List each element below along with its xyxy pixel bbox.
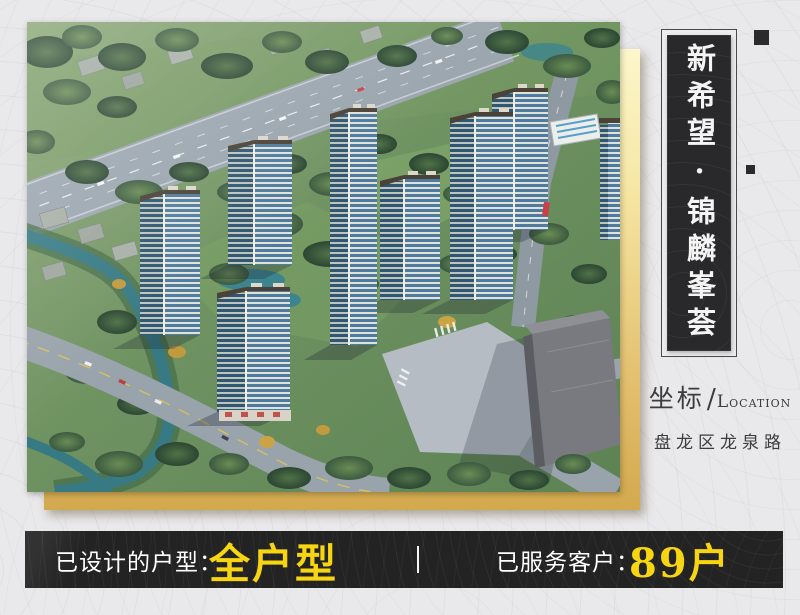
location-heading: 坐标 / L OCATION bbox=[638, 379, 800, 415]
served-clients-value: 89户 bbox=[629, 531, 731, 589]
designed-types-value: 全户型 bbox=[209, 530, 338, 590]
location-address: 盘龙区龙泉路 bbox=[638, 428, 800, 453]
aerial-rendering-image bbox=[27, 22, 620, 492]
project-title-card: 新希望·锦麟峯荟 bbox=[661, 29, 737, 357]
location-label-en-rest: OCATION bbox=[729, 397, 791, 410]
location-label-en-initial: L bbox=[717, 392, 729, 412]
location-slash: / bbox=[707, 384, 716, 415]
sunlight-glare bbox=[27, 22, 620, 492]
stats-bar: 已设计的户型： 全户型 已服务客户： 89户 bbox=[25, 531, 783, 588]
stats-divider bbox=[417, 546, 419, 573]
project-title: 新希望·锦麟峯荟 bbox=[685, 43, 714, 344]
square-accent-large bbox=[754, 30, 769, 45]
square-accent-small bbox=[746, 165, 755, 174]
project-title-inner-panel: 新希望·锦麟峯荟 bbox=[667, 35, 731, 351]
aerial-rendering-svg bbox=[27, 22, 620, 492]
served-clients-label: 已服务客户： bbox=[496, 543, 640, 577]
location-block: 坐标 / L OCATION 盘龙区龙泉路 bbox=[638, 379, 800, 453]
designed-types-label: 已设计的户型： bbox=[55, 543, 223, 577]
location-label-cn: 坐标 bbox=[649, 379, 705, 415]
